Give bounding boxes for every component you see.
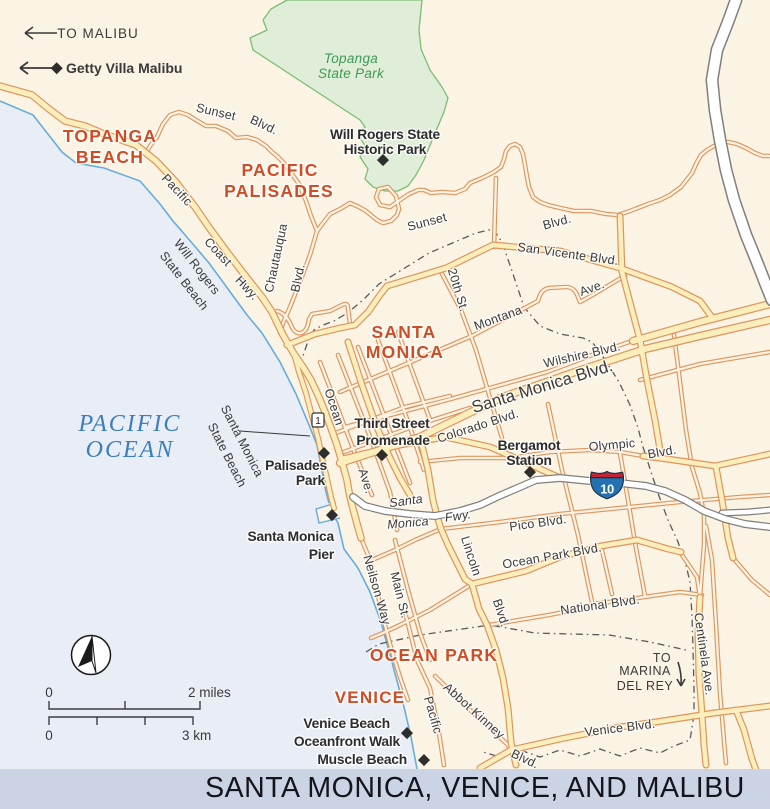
svg-text:Will Rogers State: Will Rogers State [330, 127, 440, 142]
svg-text:Station: Station [506, 453, 551, 468]
svg-text:Oceanfront Walk: Oceanfront Walk [294, 734, 401, 749]
svg-text:Bergamot: Bergamot [498, 438, 561, 453]
svg-text:OCEAN PARK: OCEAN PARK [370, 645, 498, 665]
svg-text:Third Street: Third Street [354, 416, 430, 431]
svg-text:OCEAN: OCEAN [86, 437, 175, 463]
svg-text:DEL REY: DEL REY [617, 679, 674, 693]
svg-text:TOPANGA: TOPANGA [63, 126, 157, 146]
svg-text:MARINA: MARINA [619, 664, 671, 678]
svg-text:0: 0 [45, 728, 53, 743]
svg-text:TO MALIBU: TO MALIBU [57, 26, 139, 41]
svg-text:Topanga: Topanga [324, 51, 378, 66]
svg-text:1: 1 [315, 416, 321, 427]
svg-text:10: 10 [600, 482, 614, 497]
svg-text:0: 0 [45, 685, 53, 700]
svg-text:Pier: Pier [309, 547, 335, 562]
svg-text:Santa Monica: Santa Monica [247, 529, 334, 544]
svg-text:TO: TO [653, 651, 671, 665]
svg-text:Park: Park [296, 473, 326, 488]
svg-text:Muscle Beach: Muscle Beach [317, 752, 407, 767]
svg-text:PALISADES: PALISADES [224, 181, 334, 201]
svg-text:SANTA: SANTA [372, 322, 437, 342]
svg-text:Getty Villa Malibu: Getty Villa Malibu [66, 60, 182, 76]
svg-text:SANTA MONICA, VENICE, AND MALI: SANTA MONICA, VENICE, AND MALIBU [205, 772, 745, 804]
svg-text:2 miles: 2 miles [188, 685, 231, 700]
svg-text:Palisades: Palisades [265, 458, 327, 473]
svg-text:State Park: State Park [318, 66, 385, 81]
svg-text:PACIFIC: PACIFIC [78, 411, 182, 437]
svg-text:BEACH: BEACH [76, 147, 144, 167]
svg-text:Venice Beach: Venice Beach [303, 716, 390, 731]
svg-text:VENICE: VENICE [335, 688, 406, 707]
svg-text:PACIFIC: PACIFIC [241, 160, 318, 180]
svg-text:Historic Park: Historic Park [344, 142, 427, 157]
svg-text:MONICA: MONICA [366, 342, 444, 362]
svg-text:Promenade: Promenade [356, 433, 430, 448]
svg-text:3 km: 3 km [182, 728, 211, 743]
